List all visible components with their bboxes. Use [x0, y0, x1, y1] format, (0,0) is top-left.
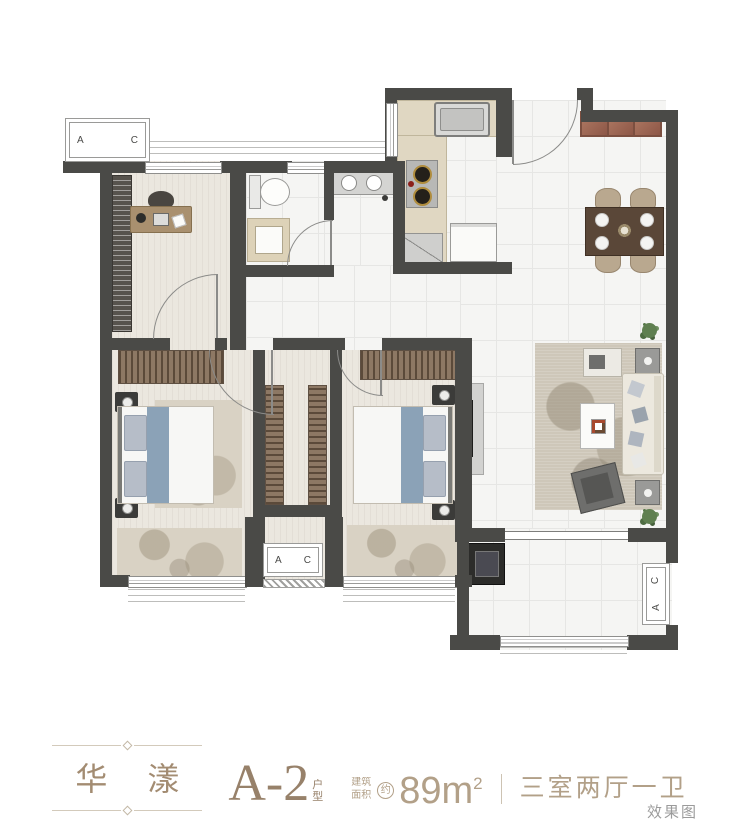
bedroom1-door-leaf: [271, 350, 273, 414]
plate-icon: [595, 236, 609, 250]
sink-basin: [255, 226, 283, 254]
stove: [406, 160, 438, 208]
sofa: [622, 373, 664, 475]
study-door-leaf: [216, 274, 218, 338]
unit-code: A-2: [228, 762, 309, 806]
sofa-pillow-icon: [631, 406, 648, 423]
burner-icon: [413, 165, 432, 184]
toilet: [260, 178, 290, 206]
floor-plan: AC CA AC: [60, 85, 680, 655]
window-sill: [343, 589, 455, 603]
console-table: [583, 348, 622, 377]
bathroom-door-leaf: [330, 220, 332, 265]
bedroom2-rug: [347, 525, 462, 577]
window: [287, 162, 326, 174]
sofa-pillow-icon: [628, 431, 645, 448]
window: [386, 103, 398, 157]
wardrobe: [118, 350, 224, 384]
plate-icon: [595, 213, 609, 227]
window: [500, 636, 629, 647]
area-label: 建筑面积: [351, 777, 373, 802]
project-name-block: 华 漾: [52, 742, 202, 814]
tray-icon: [591, 419, 606, 434]
laptop-icon: [153, 213, 169, 226]
desk-lamp-icon: [136, 213, 146, 223]
side-table: [635, 480, 660, 505]
legend: 华 漾 A-2 户型 建筑面积 约 89m2 三室两厅一卫: [0, 742, 740, 814]
ornament-line: [52, 742, 202, 749]
entry-door-leaf: [512, 100, 514, 164]
bed-runner: [147, 407, 169, 503]
dining-table: [585, 207, 664, 256]
bed: [117, 406, 214, 504]
window: [128, 576, 247, 588]
sofa-pillow-icon: [630, 452, 647, 469]
centerpiece-icon: [617, 223, 632, 238]
ac-label: C: [304, 555, 311, 566]
area-value: 89m2: [399, 776, 482, 806]
dining-chair: [630, 188, 656, 209]
plate-icon: [640, 236, 654, 250]
window: [145, 162, 222, 174]
dining-chair: [595, 253, 621, 273]
ac-platform: AC: [263, 543, 323, 577]
refrigerator: [450, 223, 497, 262]
dining-chair: [595, 188, 621, 209]
sliding-door: [505, 531, 628, 540]
desk: [130, 206, 192, 233]
ornament-line: [52, 807, 202, 814]
window-sill: [500, 647, 627, 657]
layout-description: 三室两厅一卫: [520, 768, 688, 804]
ac-label: C: [650, 577, 661, 584]
knob-icon: [408, 181, 414, 187]
washbasin-counter: [332, 170, 395, 195]
coffee-table: [580, 403, 615, 449]
plant-icon: [642, 509, 657, 524]
ac-label: A: [77, 135, 84, 146]
bedroom2-door-leaf: [380, 350, 382, 395]
ac-platform: CA: [642, 563, 670, 625]
window-sill: [148, 141, 388, 159]
basin-icon: [366, 175, 382, 191]
bed-runner: [401, 407, 423, 503]
area-exponent: 2: [473, 774, 482, 793]
window-sill: [128, 589, 245, 603]
bed: [353, 406, 453, 504]
ac-label: C: [131, 135, 138, 146]
ac-label: A: [650, 604, 661, 611]
ac-label: A: [275, 555, 282, 566]
bedroom1-rug: [117, 528, 242, 576]
bookshelf: [112, 175, 132, 332]
bathroom-vanity: [247, 218, 290, 262]
watermark: 效果图: [647, 801, 698, 822]
plate-icon: [640, 213, 654, 227]
plant-icon: [642, 323, 657, 338]
dining-chair: [630, 253, 656, 273]
basin-icon: [341, 175, 357, 191]
side-table: [635, 348, 660, 374]
faucet-icon: [382, 195, 388, 201]
burner-icon: [413, 187, 432, 206]
sofa-pillow-icon: [627, 380, 645, 398]
project-name: 华 漾: [52, 749, 202, 807]
closet-wardrobe: [308, 385, 327, 505]
paper-icon: [171, 213, 186, 228]
kitchen-sink: [434, 102, 490, 137]
ac-platform: AC: [65, 118, 150, 162]
unit-type-label: 户型: [312, 779, 325, 804]
area-approx: 约: [377, 782, 394, 799]
window: [343, 576, 457, 588]
ac-grille: [263, 579, 325, 588]
washing-machine: [467, 543, 505, 585]
legend-divider: [501, 774, 502, 804]
nightstand: [432, 385, 455, 405]
